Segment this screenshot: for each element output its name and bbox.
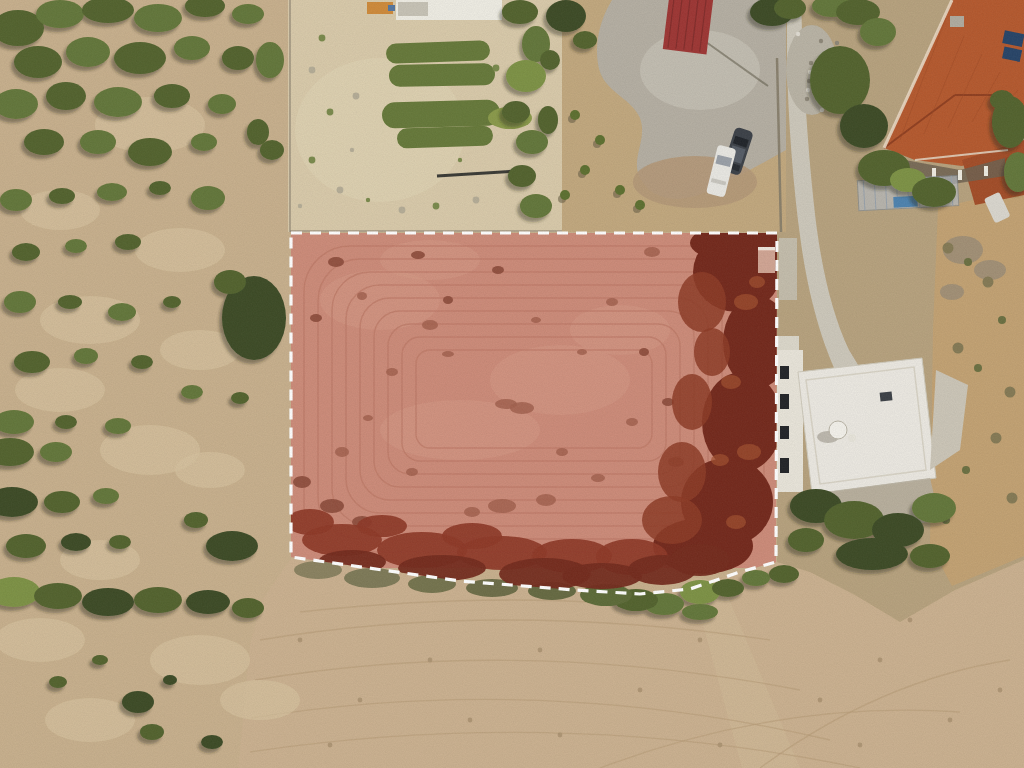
aerial-photo <box>0 0 1024 768</box>
grain-light <box>0 0 1024 768</box>
aerial-photo-canvas <box>0 0 1024 768</box>
